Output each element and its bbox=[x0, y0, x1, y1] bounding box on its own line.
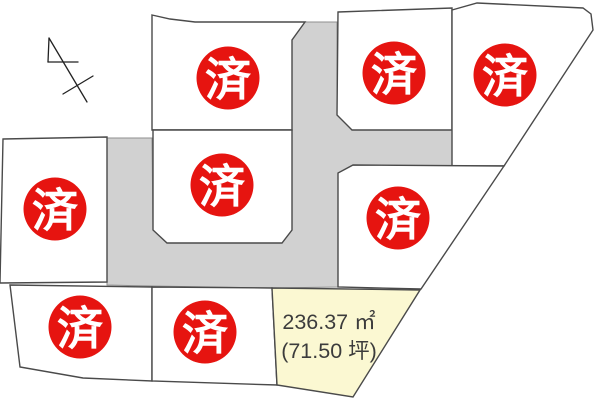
north-arrow-stroke bbox=[49, 38, 87, 102]
area-m2-text: 236.37 ㎡ bbox=[282, 309, 375, 334]
sold-badge: 済 bbox=[191, 154, 254, 217]
north-arrow bbox=[48, 38, 93, 102]
sold-stamp-label: 済 bbox=[375, 194, 422, 246]
sold-stamp-label: 済 bbox=[482, 51, 529, 103]
sold-badge: 済 bbox=[197, 47, 260, 110]
sold-stamp-label: 済 bbox=[32, 185, 79, 237]
sold-badge: 済 bbox=[367, 187, 430, 250]
north-arrow-stroke bbox=[48, 38, 49, 62]
sold-badge: 済 bbox=[174, 301, 237, 364]
sold-stamp-label: 済 bbox=[199, 161, 246, 213]
sold-badge: 済 bbox=[363, 42, 426, 105]
sold-stamp-label: 済 bbox=[371, 49, 418, 101]
area-tsubo-text: (71.50 坪) bbox=[281, 339, 377, 363]
land-plot-map-image: 済済済済済済済済 236.37 ㎡ (71.50 坪) bbox=[0, 0, 600, 404]
sold-badge: 済 bbox=[49, 296, 112, 359]
sold-stamp-label: 済 bbox=[182, 308, 229, 360]
site-map: 済済済済済済済済 236.37 ㎡ (71.50 坪) bbox=[0, 0, 600, 404]
sold-stamp-label: 済 bbox=[205, 54, 252, 106]
sold-badge: 済 bbox=[474, 44, 537, 107]
north-arrow-stroke bbox=[63, 76, 93, 94]
sold-stamp-label: 済 bbox=[57, 303, 104, 355]
sold-badge: 済 bbox=[24, 178, 87, 241]
